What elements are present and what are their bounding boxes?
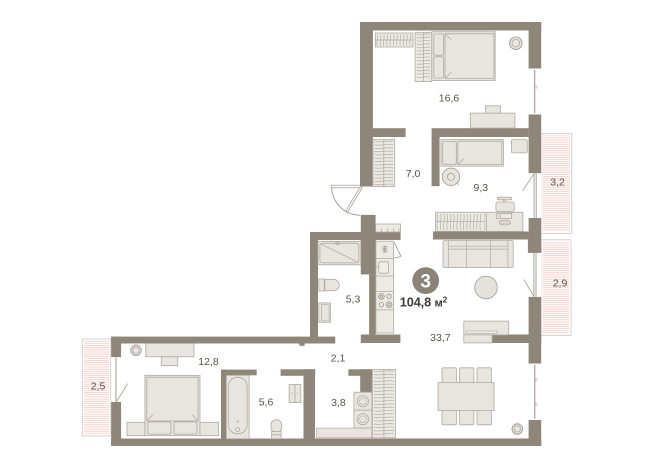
svg-text:5,6: 5,6 xyxy=(259,397,274,409)
svg-text:2,9: 2,9 xyxy=(553,277,568,289)
svg-text:2,5: 2,5 xyxy=(91,381,106,393)
svg-text:104,8 м2: 104,8 м2 xyxy=(400,295,448,309)
svg-text:3,8: 3,8 xyxy=(331,397,346,409)
svg-text:16,6: 16,6 xyxy=(439,92,460,104)
svg-text:3,2: 3,2 xyxy=(550,177,565,189)
svg-text:2,1: 2,1 xyxy=(331,352,346,364)
svg-text:3: 3 xyxy=(420,271,431,292)
svg-text:33,7: 33,7 xyxy=(430,332,451,344)
svg-text:7,0: 7,0 xyxy=(406,168,421,180)
svg-text:5,3: 5,3 xyxy=(346,293,361,305)
svg-text:12,8: 12,8 xyxy=(198,356,219,368)
svg-text:9,3: 9,3 xyxy=(473,182,488,194)
